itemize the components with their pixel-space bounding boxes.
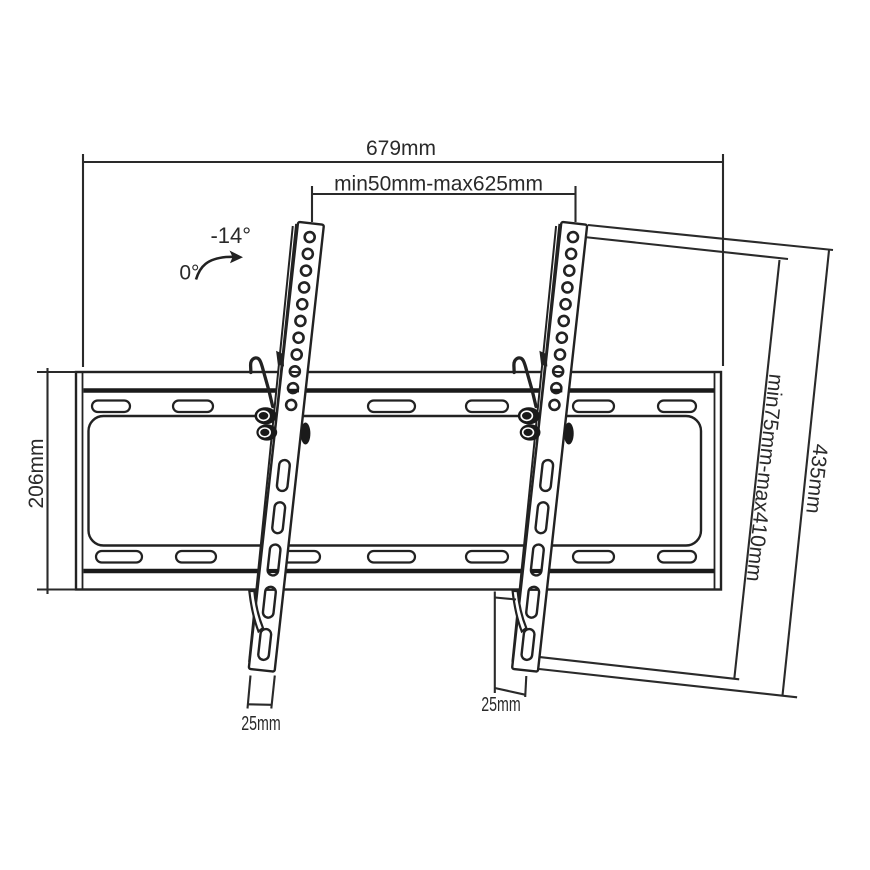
svg-text:0°: 0° (179, 262, 199, 285)
svg-text:679mm: 679mm (366, 137, 436, 160)
svg-text:25mm: 25mm (481, 693, 521, 716)
svg-text:25mm: 25mm (241, 712, 281, 735)
svg-text:-14°: -14° (210, 223, 251, 248)
svg-text:min50mm-max625mm: min50mm-max625mm (334, 173, 543, 196)
svg-text:206mm: 206mm (25, 438, 48, 508)
